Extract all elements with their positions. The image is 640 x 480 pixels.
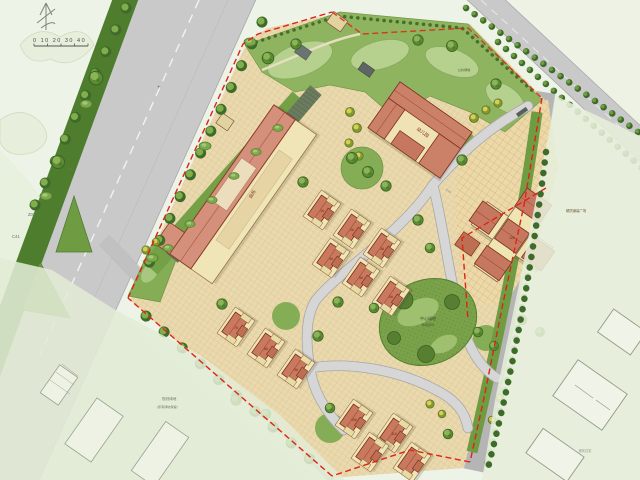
shrub-icon [207,197,217,204]
tree-icon [52,156,65,169]
unit-label: 7# [234,326,238,330]
tree-icon [443,429,453,439]
yellow-tree-icon [346,108,355,117]
central-green-sublabel: 休闲草坪 [422,322,434,327]
tree-icon [291,39,301,49]
lawn-patch [272,302,300,330]
tree-icon [325,403,335,413]
tree-clump [418,346,435,363]
shrub-icon [273,125,283,132]
tree-icon [262,52,274,64]
unit-label: 9# [294,368,298,372]
yellow-tree-icon [494,99,502,107]
road-code-z03: Z03 [28,212,36,217]
unit-label: 8# [264,347,268,351]
shrub-icon [80,100,92,108]
tree-icon [333,297,343,307]
central-green-label: 中心绿地 [420,315,436,321]
yellow-tree-icon [470,114,479,123]
tree-icon [369,303,379,313]
tree-icon [298,177,308,187]
yellow-tree-icon [345,139,353,147]
tree-icon [446,40,457,51]
unit-label: 4# [329,257,333,261]
unit-label: 5# [359,276,363,280]
note-line-1: 规划绿地 [162,396,177,401]
shrub-icon [40,192,52,200]
site-plan-page: 0 10 20 30 40 Z03 C41 + + 会所 幼儿园 1# 2# 3… [0,0,640,480]
survey-mark: + [69,167,73,173]
unit-label: 3# [380,247,384,251]
shrub-icon [229,173,239,180]
unit-label: 10# [351,418,357,422]
tree-icon [89,71,103,85]
tree-clump [445,295,460,310]
tree-icon [217,299,227,309]
shrub-icon [251,149,261,156]
unit-label: 12# [509,236,515,240]
shrub-icon [199,142,211,150]
tree-icon [413,35,423,45]
tree-icon [425,243,435,253]
unit-label: 6# [389,295,393,299]
tree-icon [457,155,467,165]
site-plan-canvas: 0 10 20 30 40 Z03 C41 + + 会所 幼儿园 1# 2# 3… [0,0,640,480]
yellow-tree-icon [438,410,446,418]
survey-mark: + [157,85,161,91]
park-label: 公共绿地 [458,67,470,72]
road-code-c41: C41 [12,234,20,239]
shrub-icon [163,245,173,252]
unit-label: 11# [391,432,397,436]
tree-icon [346,152,357,163]
plaza-label: 硬质铺装广场 [566,208,587,213]
yellow-tree-icon [353,124,362,133]
tree-clump [388,332,401,345]
unit-label: 2# [350,228,354,232]
tree-icon [362,166,373,177]
unit-label: 1# [320,209,324,213]
tree-icon [413,215,423,225]
tree-icon [491,79,501,89]
shrub-icon [146,254,158,262]
scale-numbers: 0 10 20 30 40 [33,38,86,44]
yellow-tree-icon [482,106,490,114]
shrub-icon [185,221,195,228]
context-label: 现状住宅 [579,448,592,453]
yellow-tree-icon [426,400,434,408]
tree-icon [381,181,391,191]
tree-icon [473,327,483,337]
note-line-2: (原有绿地保留) [157,404,178,409]
